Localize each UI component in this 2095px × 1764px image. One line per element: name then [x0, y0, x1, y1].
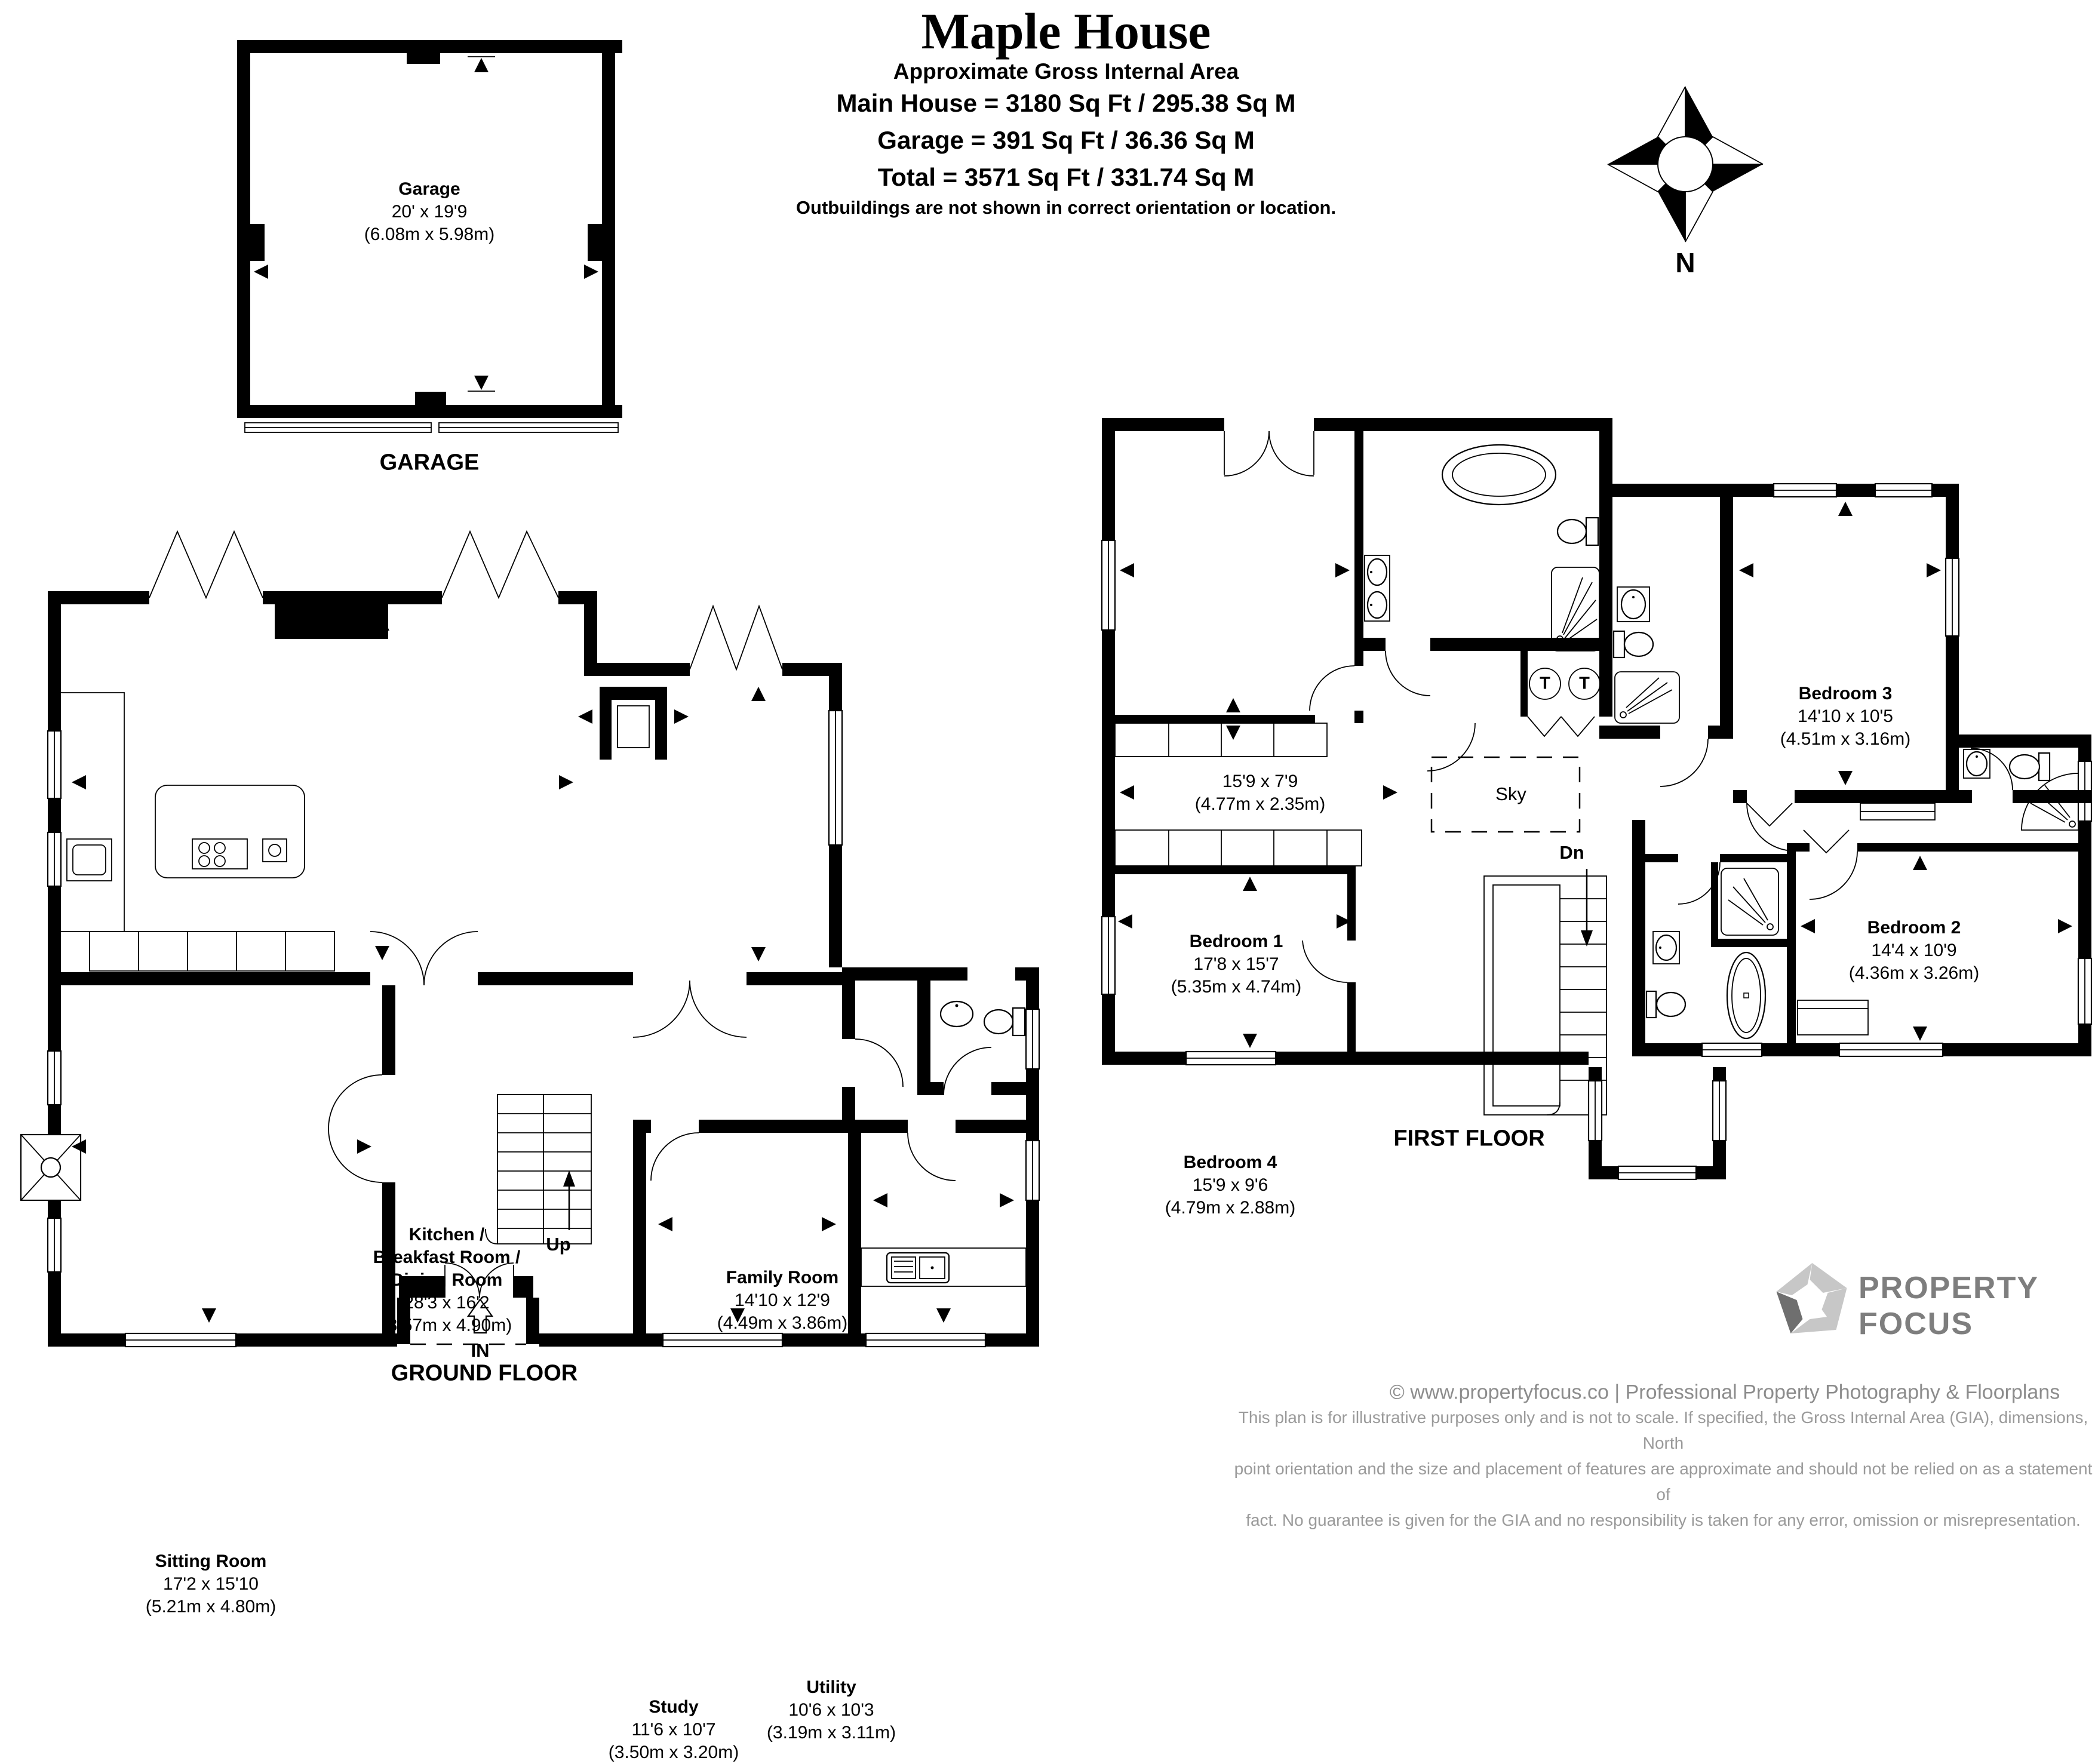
door-ensuite1 — [1386, 651, 1430, 696]
garage-caption: GARAGE — [380, 450, 480, 476]
stairs-first — [1484, 869, 1606, 1115]
dim-arrow-left — [254, 265, 268, 279]
window-utility-bottom — [866, 1333, 985, 1347]
ground-floor-plan — [12, 514, 1075, 1445]
garage-door-right — [439, 423, 618, 432]
bay-window-family — [690, 606, 782, 669]
window-sitting-left-2 — [48, 1218, 61, 1272]
kitchen-counter-left — [61, 693, 124, 932]
double-door-sitting — [328, 1075, 382, 1182]
wardrobe-row-2 — [1115, 830, 1362, 866]
ensuite1-bath — [1442, 445, 1556, 505]
footer-disclaimer: This plan is for illustrative purposes o… — [1233, 1405, 2093, 1533]
room-label-bedroom2: Bedroom 2 14'4 x 10'9 (4.36m x 3.26m) — [1849, 917, 1979, 985]
brand-line1: PROPERTY — [1859, 1271, 2039, 1305]
skylight-label: Sky — [1495, 783, 1526, 805]
compass-north-label: N — [1675, 247, 1695, 279]
bay-window-kitchen-left — [149, 531, 263, 598]
window-kitchen-left-1 — [48, 731, 61, 798]
stairs-up-label: Up — [546, 1234, 570, 1255]
dim-arrow — [578, 709, 592, 724]
compass-rose-icon — [1596, 75, 1775, 254]
window-bedroom2-bottom — [1839, 1043, 1943, 1056]
dim-arrow-down — [474, 376, 489, 390]
double-door-kitchen — [370, 932, 478, 985]
ground-floor-caption: GROUND FLOOR — [391, 1361, 577, 1387]
window-bedroom4-left — [1102, 917, 1115, 994]
shower-room-tray — [1615, 672, 1679, 723]
door-bedroom4 — [1303, 941, 1347, 982]
door-study — [651, 1133, 699, 1181]
garage-bottom-block — [415, 392, 446, 405]
window-sitting-left-1 — [48, 1051, 61, 1105]
window-porch-right — [1713, 1081, 1726, 1141]
kitchen-counter-bottom — [90, 932, 334, 971]
dim-arrow — [674, 709, 689, 724]
wc-sink — [941, 1001, 973, 1027]
fireplace-sitting — [21, 1135, 81, 1200]
window-bedroom1-left — [1102, 540, 1115, 630]
stairs-dn-label: Dn — [1559, 842, 1584, 863]
room-label-bedroom4: Bedroom 4 15'9 x 9'6 (4.79m x 2.88m) — [1165, 1151, 1295, 1219]
header-note: Outbuildings are not shown in correct or… — [705, 196, 1427, 220]
window-sitting-bottom — [125, 1333, 236, 1347]
room-label-kitchen: Kitchen / Breakfast Room / Dining Room 2… — [373, 1224, 521, 1337]
shower-room-toilet — [1614, 631, 1653, 657]
area-main-house: Main House = 3180 Sq Ft / 295.38 Sq M — [705, 85, 1427, 122]
ensuite1-sinks — [1365, 555, 1390, 621]
upper-bath-sink — [1964, 749, 1990, 778]
stairs-ground — [486, 1095, 591, 1244]
garage-door-left — [245, 423, 431, 432]
window-bedroom3-right — [1946, 558, 1959, 636]
window-family-right — [829, 711, 842, 845]
property-focus-logo-icon — [1769, 1257, 1856, 1344]
door-bedroom2 — [1810, 852, 1857, 899]
kitchen-chimney-block — [275, 604, 388, 639]
upper-bath-toilet — [2010, 753, 2050, 780]
wardrobe-bedroom3 — [1860, 803, 1935, 820]
ensuite1-toilet — [1558, 518, 1598, 545]
area-garage: Garage = 391 Sq Ft / 36.36 Sq M — [705, 122, 1427, 159]
door-utility — [908, 1133, 956, 1181]
room-label-bedroom3: Bedroom 3 14'10 x 10'5 (4.51m x 3.16m) — [1780, 683, 1910, 751]
area-total: Total = 3571 Sq Ft / 331.74 Sq M — [705, 159, 1427, 196]
window-bedroom4-bottom — [1186, 1052, 1276, 1065]
garage-room-label: Garage 20' x 19'9 (6.08m x 5.98m) — [364, 178, 494, 246]
window-wc-right — [1026, 1009, 1039, 1069]
kitchen-island — [155, 785, 305, 878]
garage-plan — [230, 33, 636, 487]
footer-credit[interactable]: © www.propertyfocus.co | Professional Pr… — [1390, 1381, 2060, 1405]
garage-pier-right — [588, 224, 602, 261]
entrance-in-label: IN — [471, 1340, 490, 1362]
door-corridor — [855, 1039, 903, 1087]
window-utility-right — [1026, 1141, 1039, 1200]
ensuite2-sink — [1653, 932, 1679, 964]
page-title: Maple House — [705, 4, 1427, 59]
garage-top-block — [407, 40, 440, 64]
wardrobe-row-1 — [1115, 723, 1327, 757]
double-door-bedroom1 — [1224, 431, 1314, 476]
dim-arrow-right — [584, 265, 598, 279]
ensuite2-bath — [1727, 952, 1765, 1038]
door-shower-room — [1660, 739, 1708, 786]
header-subtitle: Approximate Gross Internal Area — [705, 59, 1427, 85]
room-label-sitting: Sitting Room 17'2 x 15'10 (5.21m x 4.80m… — [146, 1550, 276, 1618]
wc-toilet — [984, 1008, 1025, 1035]
room-label-utility: Utility 10'6 x 10'3 (3.19m x 3.11m) — [767, 1676, 896, 1744]
ensuite2-shower — [1711, 862, 1787, 947]
fireplace-family — [600, 687, 667, 760]
utility-counter — [861, 1248, 1026, 1286]
window-kitchen-left-2 — [48, 832, 61, 886]
room-label-study: Study 11'6 x 10'7 (3.50m x 3.20m) — [609, 1696, 739, 1764]
tank-label-1: T — [1540, 674, 1550, 694]
window-porch-bottom — [1618, 1166, 1696, 1179]
garage-pier-left — [250, 224, 265, 261]
bay-window-kitchen-right — [442, 531, 558, 598]
door-bedroom1 — [1310, 666, 1354, 711]
plan-header: Maple House Approximate Gross Internal A… — [705, 4, 1427, 220]
door-wc — [944, 1047, 991, 1095]
window-porch-left — [1589, 1081, 1602, 1141]
first-floor-caption: FIRST FLOOR — [1393, 1126, 1544, 1152]
dim-arrow-up — [474, 58, 489, 72]
room-label-dressing: 15'9 x 7'9 (4.77m x 2.35m) — [1195, 770, 1325, 816]
double-door-family — [633, 981, 747, 1037]
wardrobe-bedroom2 — [1798, 1000, 1868, 1035]
ensuite2-toilet — [1646, 991, 1685, 1018]
window-bedroom3-top1 — [1774, 484, 1836, 497]
window-bedroom2-right — [2078, 958, 2091, 1024]
door-landing — [1427, 723, 1475, 771]
window-study-bottom — [663, 1333, 782, 1347]
bifold-doors-closet — [1528, 717, 1595, 736]
room-label-family: Family Room 14'10 x 12'9 (4.49m x 3.86m) — [717, 1267, 847, 1335]
brand-line2: FOCUS — [1859, 1307, 1973, 1341]
window-ensuite2-bottom — [1702, 1043, 1762, 1056]
shower-room-sink — [1617, 587, 1649, 622]
room-label-bedroom1: Bedroom 1 17'8 x 15'7 (5.35m x 4.74m) — [1171, 930, 1301, 998]
window-bedroom3-top2 — [1875, 484, 1932, 497]
tank-label-2: T — [1579, 674, 1590, 694]
